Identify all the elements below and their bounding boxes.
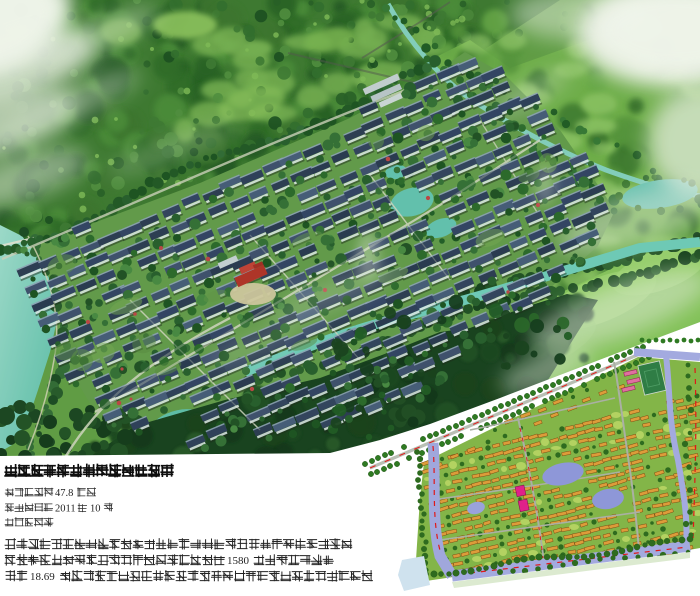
svg-text:47.8: 47.8 — [55, 488, 73, 499]
svg-text:18.69: 18.69 — [30, 571, 55, 583]
svg-text:10: 10 — [90, 504, 101, 515]
svg-text:1580: 1580 — [227, 555, 250, 567]
svg-text:2011: 2011 — [55, 504, 76, 515]
